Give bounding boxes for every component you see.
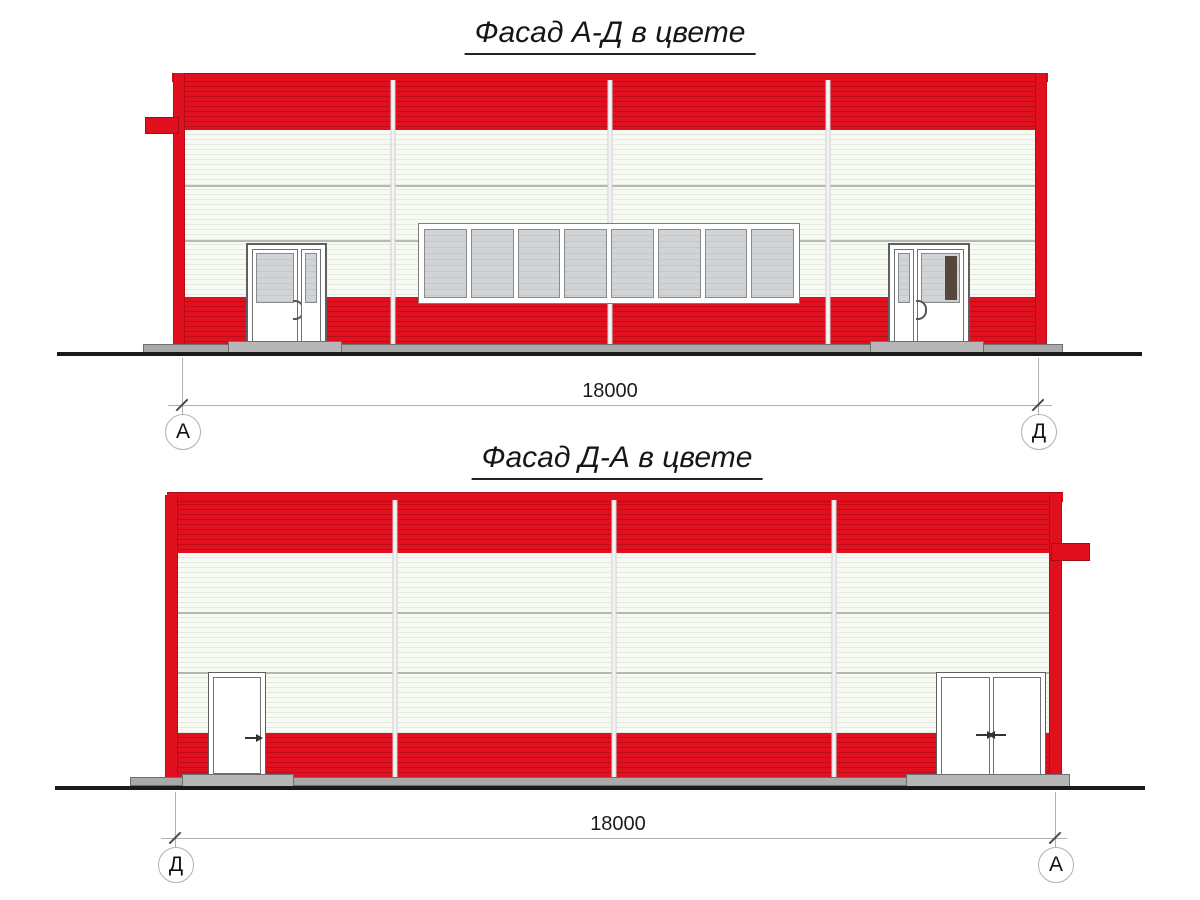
corner-trim-left — [173, 73, 185, 352]
window-pane — [471, 229, 514, 298]
door-leaf-narrow — [301, 249, 321, 343]
axis-label: А — [176, 420, 190, 444]
entrance-door-right — [888, 243, 970, 352]
window-pane — [705, 229, 748, 298]
facade-a-d-title: Фасад А-Д в цвете — [465, 16, 756, 55]
door-glazing — [256, 253, 294, 303]
downspout-bracket — [1051, 543, 1090, 561]
facade-d-a-building — [175, 492, 1053, 786]
door-leaf — [213, 677, 261, 774]
window-pane — [658, 229, 701, 298]
window-pane — [611, 229, 654, 298]
open-door-dark-gap — [945, 256, 957, 300]
door-glazing — [898, 253, 910, 303]
panel-divider — [612, 500, 617, 783]
door-leaf-wide — [917, 249, 964, 346]
double-door-right — [936, 672, 1046, 781]
panel-divider — [831, 500, 836, 783]
downspout-bracket — [145, 117, 179, 134]
corner-trim-right — [1049, 495, 1062, 786]
dimension-line — [168, 405, 1052, 406]
axis-bubble-d: Д — [158, 847, 194, 883]
door-swing-arrow — [995, 734, 1006, 736]
window-band-panes — [424, 229, 794, 298]
panel-divider — [608, 80, 613, 349]
axis-bubble-a: А — [165, 414, 201, 450]
axis-label: Д — [1032, 420, 1046, 444]
drawing-canvas: Фасад А-Д в цвете — [0, 0, 1200, 900]
dimension-line — [161, 838, 1067, 839]
axis-bubble-a: А — [1038, 847, 1074, 883]
panel-divider — [392, 500, 397, 783]
window-pane — [751, 229, 794, 298]
dimension-value: 18000 — [582, 380, 638, 403]
service-door-left — [208, 672, 266, 779]
facade-d-a-title: Фасад Д-А в цвете — [472, 441, 763, 480]
door-leaf-narrow — [894, 249, 914, 346]
entrance-door-left — [246, 243, 327, 349]
ground-line — [55, 786, 1145, 790]
door-swing-arrow — [976, 734, 987, 736]
window-pane — [424, 229, 467, 298]
axis-label: А — [1049, 853, 1063, 877]
corner-trim-right — [1035, 73, 1047, 352]
door-leaf — [993, 677, 1042, 776]
door-glazing — [305, 253, 317, 303]
door-swing-arrow — [245, 737, 256, 739]
dimension-value: 18000 — [590, 813, 646, 836]
window-pane — [564, 229, 607, 298]
door-handle — [916, 300, 927, 320]
panel-divider — [390, 80, 395, 349]
door-leaf — [941, 677, 990, 776]
ground-line — [57, 352, 1142, 356]
corner-trim-left — [165, 495, 178, 786]
window-pane — [518, 229, 561, 298]
panel-divider — [825, 80, 830, 349]
window-band — [418, 223, 800, 304]
door-leaf-wide — [252, 249, 298, 343]
axis-bubble-d: Д — [1021, 414, 1057, 450]
door-glazing — [921, 253, 960, 303]
axis-label: Д — [169, 853, 183, 877]
